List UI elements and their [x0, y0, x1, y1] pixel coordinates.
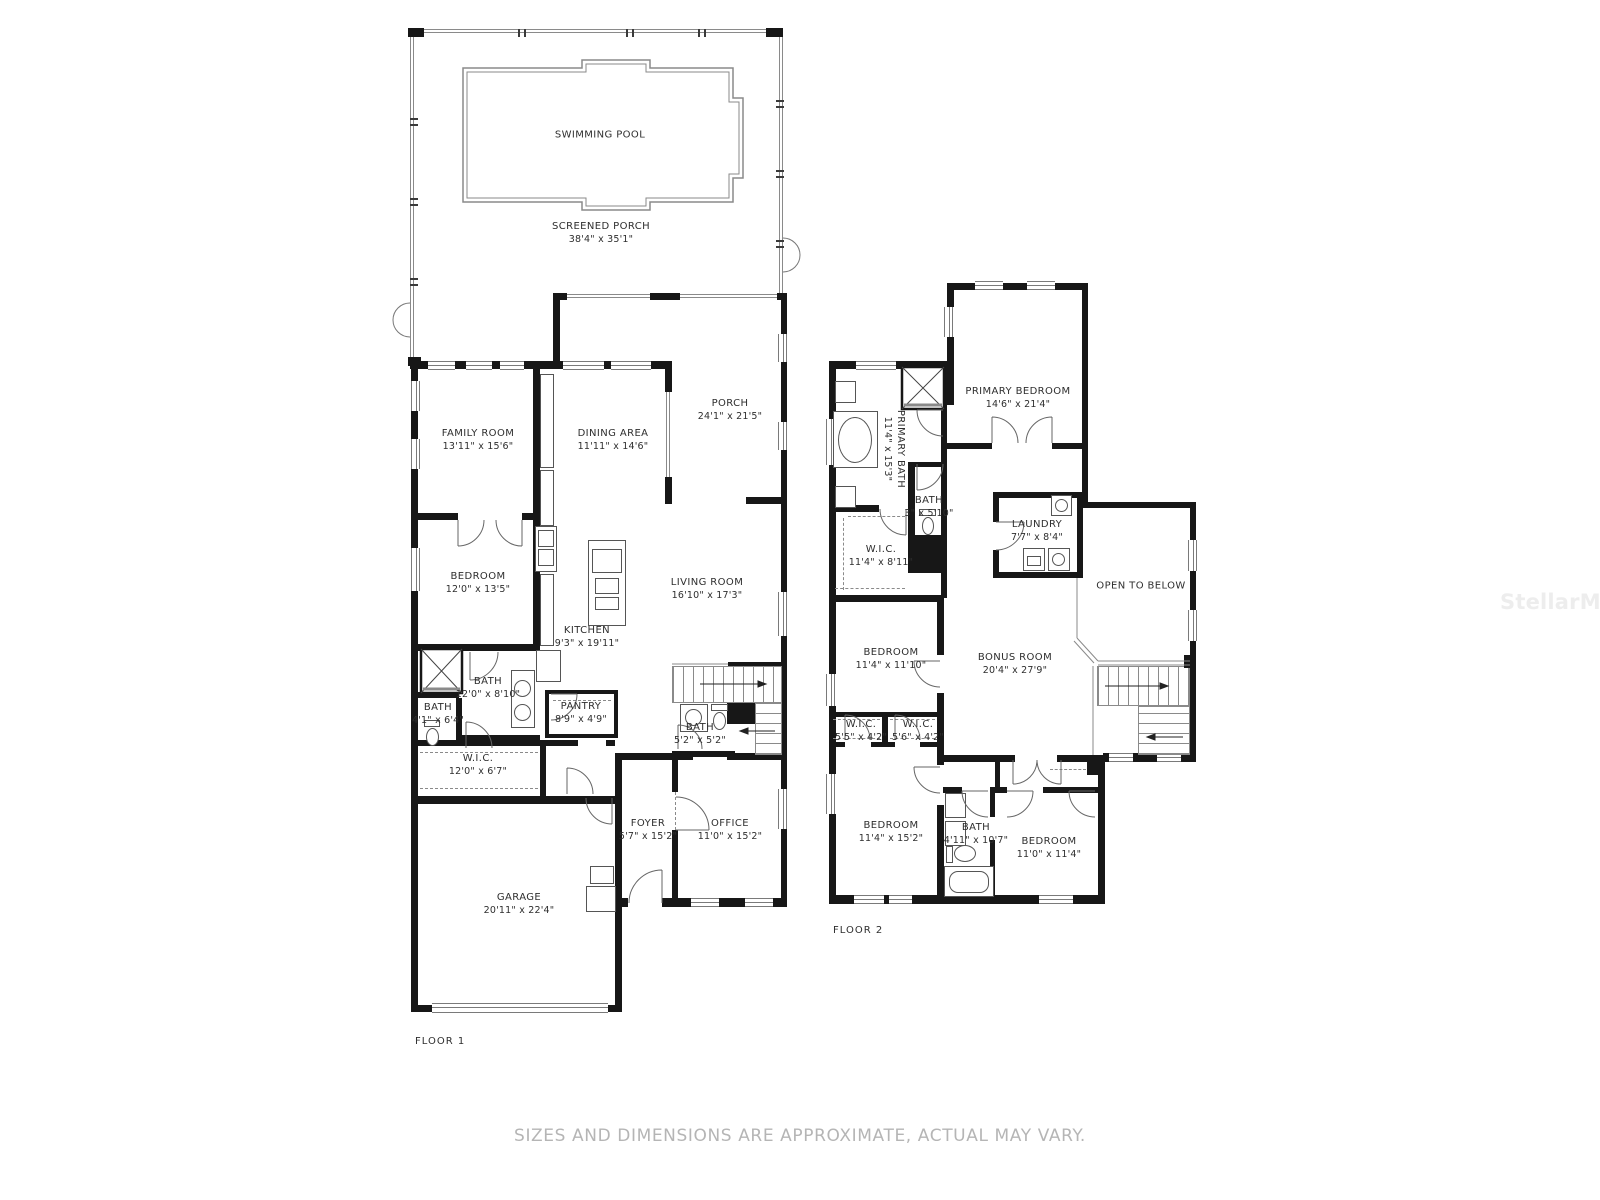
plan-linework: [650, 293, 680, 300]
plan-linework: [1184, 655, 1196, 668]
plan-linework: [1073, 895, 1105, 904]
plan-linework: [1013, 760, 1037, 784]
plan-linework: [993, 572, 1082, 578]
plan-linework: [1007, 791, 1033, 817]
plan-linework: [411, 796, 622, 804]
plan-linework: [917, 464, 943, 490]
plan-linework: [740, 728, 748, 734]
screen-door-arc: [393, 303, 410, 337]
toilet-icon: [946, 846, 953, 863]
plan-linework: [411, 692, 459, 698]
plan-linework: [629, 870, 662, 903]
plan-linework: [618, 898, 628, 907]
plan-linework: [1055, 499, 1068, 512]
plan-linework: [1138, 706, 1190, 755]
plan-linework: [896, 361, 947, 369]
plan-linework: [781, 829, 787, 907]
plan-linework: [680, 294, 777, 298]
plan-linework: [947, 283, 954, 307]
plan-linework: [949, 871, 989, 893]
plan-linework: [1050, 769, 1086, 770]
plan-linework: [1097, 666, 1190, 706]
plan-linework: [615, 753, 622, 1012]
plan-linework: [408, 28, 424, 37]
plan-linework: [835, 588, 905, 589]
plan-linework: 20'4" x 27'9": [978, 664, 1052, 677]
plan-linework: 11'11" x 14'6": [578, 440, 649, 453]
plan-linework: 11'4" x 8'11": [849, 556, 914, 569]
plan-linework: OFFICE: [698, 817, 763, 831]
plan-linework: [781, 758, 787, 789]
room-label-office: OFFICE 11'0" x 15'2": [698, 817, 763, 843]
plan-linework: KITCHEN: [555, 624, 620, 638]
sink-icon: [835, 381, 856, 403]
plan-linework: 5'6" x 4'2": [892, 731, 944, 744]
plan-linework: [912, 895, 944, 904]
room-label-bedroom-b: BEDROOM 11'4" x 15'2": [859, 819, 924, 845]
plan-linework: [604, 361, 611, 369]
plan-linework: [880, 509, 906, 535]
plan-linework: 5'2" x 5'2": [674, 734, 726, 747]
plan-linework: LAUNDRY: [1011, 518, 1063, 532]
plan-linework: [993, 492, 999, 522]
plan-linework: [662, 898, 691, 907]
plan-linework: 9'3" x 19'11": [555, 637, 620, 650]
plan-linework: W.I.C.: [892, 718, 944, 732]
kitchen-counter: [540, 470, 554, 526]
plan-linework: BATH: [904, 494, 953, 508]
plan-linework: [567, 768, 593, 794]
plan-linework: 11'0" x 15'2": [698, 830, 763, 843]
plan-linework: [1039, 895, 1073, 904]
plan-linework: [411, 644, 540, 651]
plan-linework: [889, 895, 912, 904]
plan-linework: [947, 337, 954, 405]
plan-linework: [411, 520, 418, 548]
plan-linework: 4'11" x 10'7": [944, 834, 1009, 847]
plan-linework: [606, 740, 615, 746]
plan-linework: SWIMMING POOL: [555, 128, 645, 142]
plan-linework: [781, 362, 787, 422]
plan-linework: [779, 29, 783, 295]
plan-linework: [902, 367, 944, 409]
room-label-primary-bedroom: PRIMARY BEDROOM 14'6" x 21'4": [965, 385, 1070, 411]
plan-linework: [1083, 502, 1196, 508]
plan-linework: [995, 787, 1007, 793]
plan-linework: [995, 760, 1000, 787]
plan-linework: [947, 443, 992, 449]
plan-linework: [954, 845, 976, 862]
plan-linework: [854, 895, 884, 904]
plan-linework: [1027, 281, 1055, 290]
plan-linework: [411, 1005, 432, 1012]
plan-linework: [829, 595, 943, 602]
kitchen-counter: [540, 574, 554, 646]
floor2-label: FLOOR 2: [833, 925, 883, 936]
plan-linework: [781, 450, 787, 592]
plan-linework: 20'11" x 22'4": [484, 904, 555, 917]
plan-linework: [915, 462, 941, 467]
plan-linework: [410, 29, 783, 33]
plan-linework: [611, 361, 651, 370]
plan-linework: [666, 392, 670, 477]
plan-linework: [411, 548, 420, 591]
plan-linework: [826, 774, 835, 814]
room-label-bath-small: BATH 4'1" x 6'4": [412, 701, 464, 727]
room-label-dining-area: DINING AREA 11'11" x 14'6": [578, 427, 649, 453]
room-label-kitchen: KITCHEN 9'3" x 19'11": [555, 624, 620, 650]
floor-plan-page: SWIMMING POOL SCREENED PORCH 38'4" x 35'…: [0, 0, 1600, 1200]
plan-linework: 11'4" x 15'2": [859, 832, 924, 845]
plan-linework: [553, 293, 560, 367]
room-label-screened-porch: SCREENED PORCH 38'4" x 35'1": [552, 220, 650, 246]
plan-linework: [1190, 502, 1196, 540]
plan-linework: [411, 439, 420, 469]
plan-linework: [778, 789, 787, 829]
room-label-bonus-room: BONUS ROOM 20'4" x 27'9": [978, 651, 1052, 677]
plan-linework: [778, 334, 787, 362]
plan-linework: [937, 805, 944, 904]
plan-linework: [563, 361, 604, 370]
plan-linework: [829, 814, 836, 904]
plan-linework: [917, 410, 943, 436]
room-label-bath-stairs: BATH 5'2" x 5'2": [674, 721, 726, 747]
plan-linework: [1003, 283, 1027, 290]
plan-linework: [538, 549, 554, 566]
garage-step: [586, 886, 616, 912]
plan-linework: [524, 29, 526, 37]
plan-linework: [1190, 571, 1196, 610]
plan-linework: [500, 361, 524, 370]
room-label-wic1: W.I.C. 12'0" x 6'7": [449, 752, 507, 778]
plan-linework: [719, 898, 745, 907]
plan-linework: [411, 363, 418, 381]
plan-linework: [411, 411, 418, 439]
plan-linework: [410, 278, 418, 280]
plan-linework: PRIMARY BATH: [894, 410, 908, 488]
sink-icon: [514, 704, 531, 721]
plan-linework: [492, 361, 500, 369]
plan-linework: [826, 674, 835, 706]
plan-linework: [1057, 755, 1105, 762]
plan-linework: DINING AREA: [578, 427, 649, 441]
room-label-wic-a: W.I.C. 5'5" x 4'2": [835, 718, 887, 744]
plan-linework: [848, 516, 905, 517]
plan-linework: [1069, 791, 1095, 817]
plan-linework: [995, 895, 1039, 904]
plan-linework: [1109, 753, 1133, 762]
plan-linework: [908, 535, 944, 573]
room-label-bath-fl2-small: BATH 3" x 5'10": [904, 494, 953, 520]
plan-linework: 7'7" x 8'4": [1011, 531, 1063, 544]
plan-linework: 3" x 5'10": [904, 507, 953, 520]
room-label-primary-bath: PRIMARY BATH 11'4" x 15'3": [881, 410, 907, 488]
plan-linework: [975, 281, 1003, 290]
plan-linework: [1052, 553, 1065, 566]
plan-linework: BATH: [944, 821, 1009, 835]
room-label-bath-hall: BATH 4'11" x 10'7": [944, 821, 1009, 847]
plan-linework: [1188, 540, 1197, 571]
plan-linework: [1026, 417, 1052, 443]
garage-door: [432, 1003, 608, 1013]
plan-linework: [538, 530, 554, 547]
floor1-label: FLOOR 1: [415, 1036, 465, 1047]
plan-linework: BONUS ROOM: [978, 651, 1052, 665]
plan-linework: [941, 405, 947, 467]
plan-linework: [665, 477, 672, 504]
plan-linework: [626, 29, 628, 37]
plan-linework: BATH: [412, 701, 464, 715]
plan-linework: BATH: [674, 721, 726, 735]
plan-linework: BATH: [456, 675, 521, 689]
plan-linework: [829, 361, 856, 369]
plan-linework: [410, 204, 418, 206]
plan-linework: [615, 753, 693, 760]
plan-linework: [781, 293, 787, 334]
plan-linework: [704, 29, 706, 37]
plan-linework: [496, 520, 522, 546]
plan-linework: PRIMARY BEDROOM: [965, 385, 1070, 399]
plan-linework: [411, 381, 420, 411]
plan-linework: [420, 788, 538, 789]
plan-linework: 11'4" x 11'10": [856, 659, 927, 672]
garage-step: [590, 866, 614, 884]
plan-linework: [455, 361, 466, 369]
room-label-bedroom-c: BEDROOM 11'0" x 11'4": [1017, 835, 1082, 861]
plan-linework: [411, 745, 418, 1012]
plan-linework: PANTRY: [555, 700, 607, 714]
plan-linework: [426, 728, 439, 746]
plan-linework: [776, 106, 784, 108]
plan-linework: [1087, 760, 1098, 775]
plan-linework: [838, 417, 872, 463]
plan-linework: [1098, 661, 1190, 665]
plan-linework: [766, 28, 783, 37]
plan-linework: BEDROOM: [446, 570, 511, 584]
plan-linework: [567, 294, 650, 298]
plan-linework: BEDROOM: [859, 819, 924, 833]
sink-icon: [945, 793, 966, 818]
plan-linework: [518, 29, 520, 37]
room-label-wic-b: W.I.C. 5'6" x 4'2": [892, 718, 944, 744]
plan-linework: [524, 361, 563, 369]
screen-door-arc: [783, 238, 800, 272]
plan-linework: [829, 895, 854, 904]
sink-icon: [595, 578, 619, 594]
plan-linework: [665, 367, 672, 392]
plan-linework: W.I.C.: [449, 752, 507, 766]
room-label-bath-main: BATH 12'0" x 8'10": [456, 675, 521, 701]
plan-linework: [843, 518, 844, 590]
plan-linework: [411, 591, 418, 650]
plan-linework: BEDROOM: [1017, 835, 1082, 849]
refrigerator-icon: [536, 650, 561, 682]
plan-linework: [533, 367, 540, 520]
room-label-pantry: PANTRY 8'9" x 4'9": [555, 700, 607, 726]
plan-linework: [458, 520, 484, 546]
room-label-porch: PORCH 24'1" x 21'5": [698, 397, 763, 423]
plan-linework: 13'11" x 15'6": [442, 440, 515, 453]
room-label-wic-primary: W.I.C. 11'4" x 8'11": [849, 543, 914, 569]
plan-linework: [776, 240, 784, 242]
plan-linework: [672, 760, 678, 792]
plan-linework: [691, 898, 719, 907]
plan-linework: 11'0" x 11'4": [1017, 848, 1082, 861]
room-label-bedroom1: BEDROOM 12'0" x 13'5": [446, 570, 511, 596]
plan-linework: [1082, 283, 1088, 502]
plan-linework: 16'10" x 17'3": [671, 589, 743, 602]
plan-linework: [672, 666, 782, 703]
room-label-bedroom-a: BEDROOM 11'4" x 11'10": [856, 646, 927, 672]
plan-linework: [466, 361, 492, 370]
plan-linework: [410, 124, 418, 126]
plan-linework: [776, 170, 784, 172]
plan-linework: [778, 592, 787, 636]
kitchen-counter: [540, 374, 554, 468]
floorplan-linework: [0, 0, 1600, 1200]
plan-linework: [411, 513, 458, 520]
sink-icon: [835, 486, 856, 508]
plan-linework: 5'7" x 15'2": [619, 830, 677, 843]
plan-linework: [992, 417, 1018, 443]
plan-linework: FAMILY ROOM: [442, 427, 515, 441]
plan-linework: [1037, 760, 1061, 784]
plan-linework: 12'0" x 6'7": [449, 765, 507, 778]
stellar-mls-watermark: StellarMLS: [1500, 590, 1600, 614]
plan-linework: [698, 29, 700, 37]
plan-linework: W.I.C.: [835, 718, 887, 732]
plan-linework: SCREENED PORCH: [552, 220, 650, 234]
plan-linework: [1043, 787, 1103, 793]
room-label-foyer: FOYER 5'7" x 15'2": [619, 817, 677, 843]
room-label-garage: GARAGE 20'11" x 22'4": [484, 891, 555, 917]
plan-linework: [595, 597, 619, 610]
plan-linework: [632, 29, 634, 37]
dishwasher-icon: [592, 549, 622, 573]
plan-linework: BEDROOM: [856, 646, 927, 660]
plan-linework: [1098, 760, 1105, 902]
plan-linework: [410, 198, 418, 200]
room-label-swimming-pool: SWIMMING POOL: [555, 128, 645, 142]
plan-linework: 11'4" x 15'3": [881, 410, 894, 488]
toilet-icon: [711, 704, 728, 711]
plan-linework: [776, 246, 784, 248]
room-label-living-room: LIVING ROOM 16'10" x 17'3": [671, 576, 743, 602]
plan-linework: 5'5" x 4'2": [835, 731, 887, 744]
plan-linework: PORCH: [698, 397, 763, 411]
plan-linework: 8'9" x 4'9": [555, 713, 607, 726]
plan-linework: [410, 284, 418, 286]
plan-linework: [410, 118, 418, 120]
plan-linework: 12'0" x 13'5": [446, 583, 511, 596]
plan-linework: [943, 755, 1015, 762]
plan-linework: [937, 598, 944, 655]
plan-linework: [778, 422, 787, 450]
plan-linework: [410, 29, 414, 365]
plan-linework: [776, 100, 784, 102]
disclaimer-text: SIZES AND DIMENSIONS ARE APPROXIMATE, AC…: [0, 1126, 1600, 1146]
plan-linework: [914, 767, 940, 793]
plan-linework: [1027, 556, 1041, 566]
plan-linework: 14'6" x 21'4": [965, 398, 1070, 411]
room-label-laundry: LAUNDRY 7'7" x 8'4": [1011, 518, 1063, 544]
plan-linework: OPEN TO BELOW: [1096, 579, 1185, 593]
plan-linework: FOYER: [619, 817, 677, 831]
plan-linework: 12'0" x 8'10": [456, 688, 521, 701]
plan-linework: 4'1" x 6'4": [412, 714, 464, 727]
plan-linework: [755, 703, 782, 755]
plan-linework: GARAGE: [484, 891, 555, 905]
plan-linework: [902, 367, 944, 409]
plan-linework: W.I.C.: [849, 543, 914, 557]
plan-linework: [944, 307, 953, 337]
plan-linework: [540, 740, 546, 798]
plan-linework: [776, 176, 784, 178]
shower-icon: [902, 367, 944, 409]
plan-linework: [428, 361, 455, 370]
plan-linework: [856, 361, 896, 370]
room-label-open-to-below: OPEN TO BELOW: [1096, 579, 1185, 593]
plan-linework: 38'4" x 35'1": [552, 233, 650, 246]
plan-linework: [1188, 610, 1197, 641]
plan-linework: [1052, 443, 1088, 449]
plan-linework: [745, 898, 773, 907]
plan-linework: LIVING ROOM: [671, 576, 743, 590]
plan-linework: [1074, 578, 1098, 663]
plan-linework: 24'1" x 21'5": [698, 410, 763, 423]
room-label-family-room: FAMILY ROOM 13'11" x 15'6": [442, 427, 515, 453]
